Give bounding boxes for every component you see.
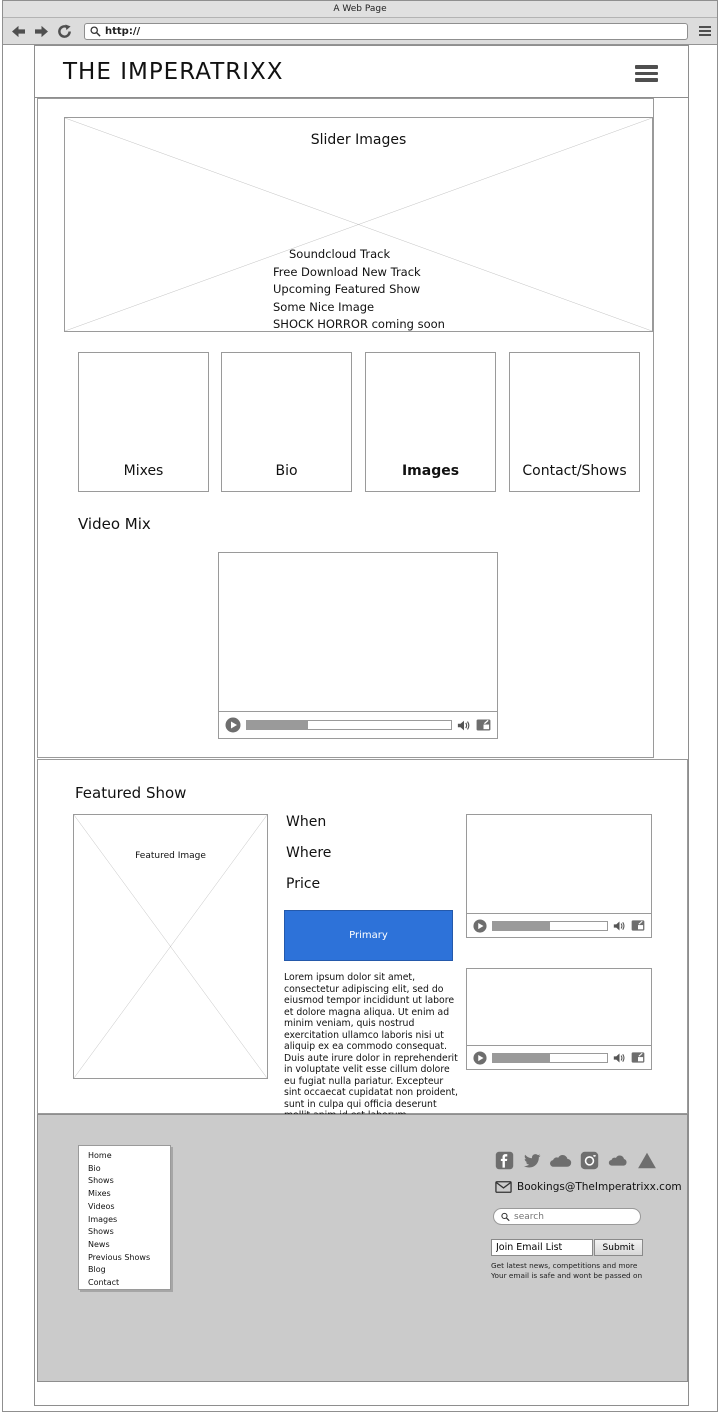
video-controls [467,1045,651,1069]
play-button-icon[interactable] [473,1051,487,1065]
browser-menu-icon[interactable] [699,26,711,36]
slider-title: Slider Images [65,132,652,148]
refresh-icon [57,24,72,39]
refresh-button[interactable] [55,22,73,40]
video-player [218,552,498,739]
booking-email-link[interactable]: Bookings@TheImperatrixx.com [495,1181,682,1193]
field-where: Where [286,845,331,861]
nav-card-label: Mixes [79,463,208,479]
email-signup-note-line2: Your email is safe and wont be passed on [491,1271,642,1281]
video-controls [219,711,497,738]
footer-nav-contact[interactable]: Contact [88,1277,170,1290]
primary-button[interactable]: Primary [284,910,453,961]
volume-icon[interactable] [613,920,626,932]
slider-item: Some Nice Image [273,299,445,317]
footer-nav-home[interactable]: Home [88,1150,170,1163]
mixcloud-icon[interactable] [607,1154,629,1167]
footer-nav-shows[interactable]: Shows [88,1175,170,1188]
image-slider[interactable]: Slider Images Soundcloud Track Free Down… [64,117,653,332]
url-input[interactable] [105,26,682,37]
footer-nav-news[interactable]: News [88,1239,170,1252]
nav-card-label: Bio [222,463,351,479]
footer: Home Bio Shows Mixes Videos Images Shows… [37,1114,688,1382]
play-button-icon[interactable] [473,919,487,933]
featured-show-description: Lorem ipsum dolor sit amet, consectetur … [284,972,462,1122]
progress-bar[interactable] [492,1053,608,1063]
search-icon [501,1212,510,1222]
facebook-icon[interactable] [495,1151,514,1170]
slider-item: Soundcloud Track [273,246,445,264]
footer-nav-list: Home Bio Shows Mixes Videos Images Shows… [78,1145,171,1290]
footer-nav-bio[interactable]: Bio [88,1163,170,1176]
triangle-icon[interactable] [637,1152,657,1169]
footer-nav-images[interactable]: Images [88,1214,170,1227]
footer-nav-mixes[interactable]: Mixes [88,1188,170,1201]
nav-card-bio[interactable]: Bio [221,352,352,492]
email-signup-note: Get latest news, competitions and more Y… [491,1261,642,1280]
slider-item: Free Download New Track [273,264,445,282]
nav-hamburger-icon[interactable] [635,65,658,82]
video-mix-heading: Video Mix [78,515,151,533]
featured-image-label: Featured Image [74,851,267,861]
slider-item: SHOCK HORROR coming soon [273,316,445,334]
site-title: THE IMPERATRIXX [63,59,284,85]
nav-card-images[interactable]: Images [365,352,496,492]
footer-nav-shows-2[interactable]: Shows [88,1226,170,1239]
browser-window: A Web Page THE IMPERATRIXX [2,0,718,1412]
footer-nav-previous-shows[interactable]: Previous Shows [88,1252,170,1265]
soundcloud-icon[interactable] [550,1153,572,1168]
booking-email-text: Bookings@TheImperatrixx.com [517,1181,682,1193]
volume-icon[interactable] [613,1052,626,1064]
progress-bar[interactable] [246,720,452,730]
footer-nav-blog[interactable]: Blog [88,1264,170,1277]
social-icons-row [495,1151,657,1170]
twitter-icon[interactable] [522,1152,542,1170]
play-button-icon[interactable] [225,717,241,733]
featured-show-section: Featured Show Featured Image When Where … [37,759,688,1114]
fullscreen-icon[interactable] [476,719,491,731]
search-box[interactable] [493,1208,641,1225]
featured-video-player-2 [466,968,652,1070]
forward-arrow-icon [34,25,49,38]
main-content-panel: Slider Images Soundcloud Track Free Down… [37,98,654,758]
featured-image-placeholder: Featured Image [73,814,268,1079]
nav-card-mixes[interactable]: Mixes [78,352,209,492]
email-list-input[interactable] [491,1239,593,1256]
fullscreen-icon[interactable] [631,1052,645,1063]
slider-item: Upcoming Featured Show [273,281,445,299]
submit-button[interactable]: Submit [594,1239,643,1256]
featured-show-heading: Featured Show [75,784,186,802]
browser-toolbar [3,18,717,45]
forward-button[interactable] [32,22,50,40]
search-input[interactable] [514,1212,633,1222]
browser-titlebar: A Web Page [3,1,717,18]
url-bar[interactable] [84,23,688,40]
window-title: A Web Page [333,4,386,14]
nav-card-contact-shows[interactable]: Contact/Shows [509,352,640,492]
volume-icon[interactable] [457,719,471,732]
footer-nav-videos[interactable]: Videos [88,1201,170,1214]
field-price: Price [286,876,320,892]
video-controls [467,913,651,937]
site-header: THE IMPERATRIXX [35,46,688,98]
page: THE IMPERATRIXX Slider Images Soundcloud… [34,45,689,1406]
nav-card-label: Images [366,463,495,479]
progress-bar[interactable] [492,921,608,931]
search-icon [90,26,101,37]
nav-card-row: Mixes Bio Images Contact/Shows [38,352,653,492]
field-when: When [286,814,326,830]
back-arrow-icon [11,25,26,38]
back-button[interactable] [9,22,27,40]
featured-video-player-1 [466,814,652,938]
fullscreen-icon[interactable] [631,920,645,931]
wireframe-screenshot: A Web Page THE IMPERATRIXX [0,0,720,1414]
nav-card-label: Contact/Shows [510,463,639,479]
instagram-icon[interactable] [580,1151,599,1170]
slider-item-list: Soundcloud Track Free Download New Track… [273,246,445,334]
envelope-icon [495,1181,512,1193]
email-signup-note-line1: Get latest news, competitions and more [491,1261,642,1271]
